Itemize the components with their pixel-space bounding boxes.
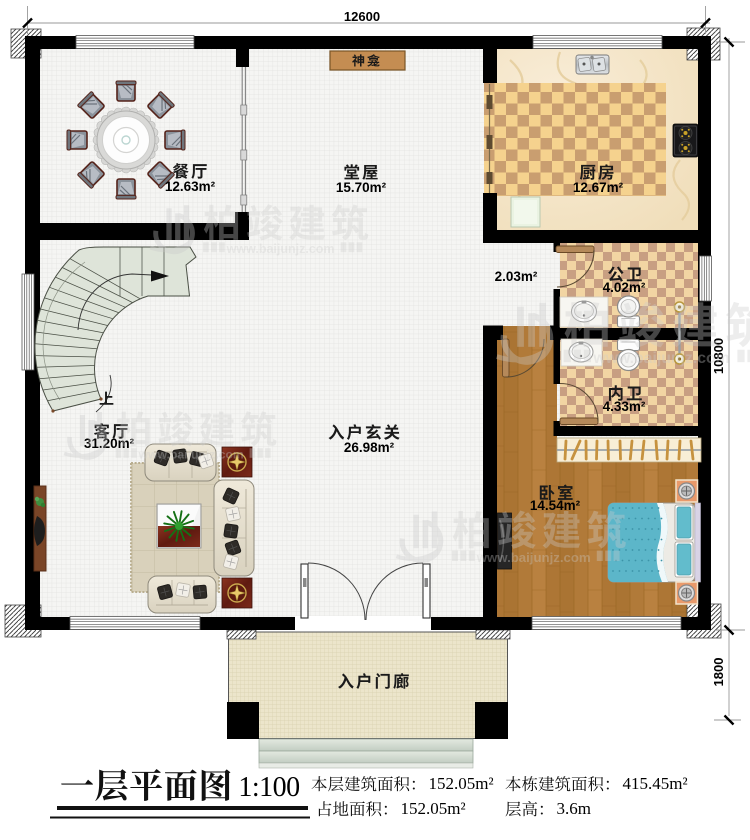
svg-text:12600: 12600 [344,9,380,24]
svg-text:www.baijunjz.com: www.baijunjz.com [592,350,729,367]
svg-text:4.33m²: 4.33m² [603,399,646,414]
svg-text:2.03m²: 2.03m² [495,269,538,284]
svg-text:3.6m: 3.6m [557,799,591,818]
svg-text:4.02m²: 4.02m² [603,280,646,295]
svg-text:www.baijunjz.com: www.baijunjz.com [138,448,244,462]
svg-text:15.70m²: 15.70m² [336,180,387,195]
svg-text:12.67m²: 12.67m² [573,180,624,195]
svg-text:1:100: 1:100 [238,772,299,803]
svg-text:152.05m²: 152.05m² [401,799,466,818]
svg-text:www.baijunjz.com: www.baijunjz.com [226,242,335,256]
svg-text:www.baijunjz.com: www.baijunjz.com [476,550,591,565]
svg-text:12.63m²: 12.63m² [165,179,216,194]
svg-text:26.98m²: 26.98m² [344,440,395,455]
svg-text:415.45m²: 415.45m² [623,774,688,793]
svg-text:14.54m²: 14.54m² [530,498,581,513]
svg-text:152.05m²: 152.05m² [429,774,494,793]
svg-text:1800: 1800 [711,658,726,687]
